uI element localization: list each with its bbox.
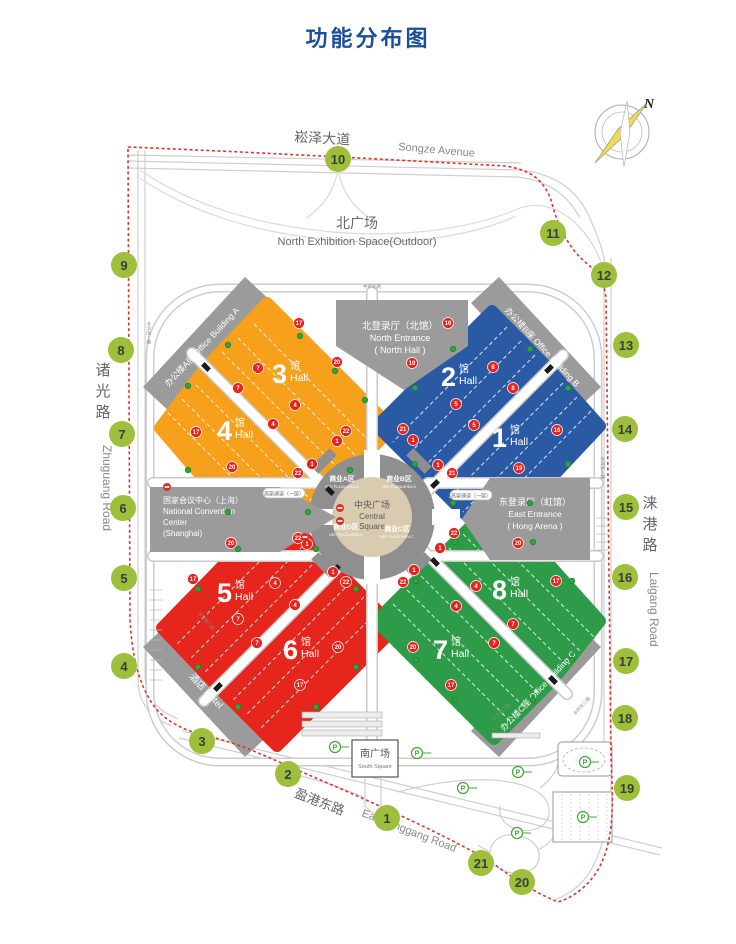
north-entrance-en2: ( North Hall ) [374, 345, 425, 355]
songze-cn-label: 崧泽大道 [294, 129, 351, 148]
north-entrance-cn: 北登录厅（北馆） [362, 320, 438, 332]
hall-entry-dot [347, 467, 353, 473]
hall-6-number: 6 [283, 635, 298, 665]
metro-platform [302, 721, 382, 727]
hall-entry-dot [569, 578, 575, 584]
hall-4-en: Hall [235, 429, 253, 441]
page-title: 功能分布图 [305, 26, 430, 51]
hall-entry-dot [569, 657, 575, 663]
hall-2-en: Hall [459, 375, 477, 387]
laigang-cn-label: 涞港路 [642, 495, 657, 554]
boundary-marker-number: 6 [119, 501, 126, 516]
hall-2-number: 2 [441, 362, 456, 392]
road-songze [128, 168, 580, 218]
micro-road-label: 中环东一路 [599, 457, 606, 480]
boundary-marker-number: 1 [383, 811, 390, 826]
hall-entry-dot [235, 704, 241, 710]
road-south-loop [490, 835, 539, 874]
no-entry-bar [338, 507, 343, 509]
hall-entry-dot [450, 346, 456, 352]
hall-8-number: 8 [492, 575, 507, 605]
gate-marker-number: 17 [297, 683, 304, 689]
compass-needle-secondary [620, 101, 630, 167]
hall-7-en: Hall [451, 648, 469, 660]
hall-1-number: 1 [492, 423, 507, 453]
central-square-label-en: Square [359, 522, 385, 531]
micro-road-label: 中环东三路 [572, 695, 593, 717]
south-area: 南广场 South Square [302, 712, 612, 842]
ncc-label-cn: 国家会议中心（上海） [163, 495, 243, 505]
micro-road-label: 中环北路 [363, 283, 381, 290]
hall-entry-dot [530, 539, 536, 545]
hall-entry-dot [305, 509, 311, 515]
central-square-label-en: Central [359, 512, 385, 521]
zhuguang-en-label: Zhuguang Road [100, 445, 114, 531]
hall-4-suffix: 馆 [235, 416, 245, 429]
gate-marker-number: 21 [449, 471, 456, 477]
hall-entry-dot [452, 697, 458, 703]
parking-icon-letter: P [461, 786, 466, 793]
plaza-quadrant-cn: 商业C区 [384, 524, 410, 533]
gate-marker-number: 22 [451, 531, 458, 537]
boundary-marker-number: 13 [619, 338, 633, 353]
gate-marker-number: 20 [410, 645, 417, 651]
metro-platform [492, 733, 540, 738]
hall-entry-dot [332, 368, 338, 374]
boundary-marker-number: 16 [618, 570, 632, 585]
micro-road-label: 中环西一路 [145, 322, 152, 345]
hall-1-suffix: 馆 [510, 423, 520, 436]
hall-2-suffix: 馆 [459, 362, 469, 375]
gate-marker-number: 19 [409, 361, 416, 367]
plaza-quadrant-en: NEC PLAZA AREA B [382, 485, 416, 489]
boundary-marker-number: 9 [120, 258, 127, 273]
road-north-square [140, 170, 520, 234]
gate-marker-number: 22 [343, 580, 350, 586]
parking-icon-letter: P [333, 745, 338, 752]
parking-icon-letter: P [516, 770, 521, 777]
parking-icon-letter: P [583, 760, 588, 767]
no-entry-bar [303, 536, 308, 538]
ncc-label-en2: Center [163, 518, 187, 527]
parking-icon-letter: P [415, 751, 420, 758]
boundary-marker-number: 14 [618, 422, 633, 437]
hall-entry-dot [362, 397, 368, 403]
gate-marker-number: 19 [516, 466, 523, 472]
gate-marker-number: 21 [400, 427, 407, 433]
hall-entry-dot [353, 586, 359, 592]
hall-7-suffix: 馆 [451, 635, 461, 648]
gate-marker-number: 17 [193, 430, 200, 436]
boundary-marker-number: 12 [597, 268, 611, 283]
hall-entry-dot [225, 509, 231, 515]
north-square-cn: 北广场 [336, 215, 378, 231]
north-entrance-en: North Entrance [370, 333, 431, 343]
gate-marker-number: 20 [515, 541, 522, 547]
hall-1-en: Hall [510, 436, 528, 448]
gate-marker-number: 17 [553, 579, 560, 585]
parking-icon-letter: P [515, 831, 520, 838]
hall-5-suffix: 馆 [235, 578, 245, 591]
boundary-marker-number: 18 [618, 711, 632, 726]
road-north-square [140, 178, 516, 242]
gate-marker-number: 22 [295, 536, 302, 542]
gate-marker-number: 22 [400, 580, 407, 586]
hall-entry-dot [185, 467, 191, 473]
ncc-label-en: National Convention [163, 507, 235, 516]
hall-7-number: 7 [433, 635, 448, 665]
hall-3-number: 3 [272, 359, 287, 389]
compass: N [595, 97, 655, 167]
hall-6-en: Hall [301, 648, 319, 660]
north-square-en: North Exhibition Space(Outdoor) [278, 236, 437, 248]
hall-3-suffix: 馆 [290, 359, 300, 372]
central-square-label-cn: 中央广场 [354, 499, 390, 510]
hall-entry-dot [565, 461, 571, 467]
gate-marker-number: 22 [295, 471, 302, 477]
plaza-quadrant-en: NEC PLAZA AREA D [329, 533, 363, 537]
boundary-marker-number: 17 [619, 654, 633, 669]
gate-marker-number: 17 [448, 683, 455, 689]
viaduct-west-label: 高架通道（一层） [264, 491, 304, 498]
zhuguang-cn-label: 诸光路 [95, 362, 110, 421]
hall-entry-dot [413, 578, 419, 584]
plaza-quadrant-cn: 商业A区 [329, 474, 355, 483]
gate-marker-number: 20 [228, 541, 235, 547]
boundary-marker-number: 20 [515, 875, 529, 890]
compass-n-label: N [643, 97, 655, 112]
gate-marker-number: 16 [445, 321, 452, 327]
hall-entry-dot [225, 342, 231, 348]
plaza-quadrant-cn: 商业B区 [386, 474, 412, 483]
viaduct-east-label: 高架通道（一层） [451, 493, 491, 500]
boundary-marker-number: 21 [474, 856, 488, 871]
hall-entry-dot [565, 385, 571, 391]
south-square-en: South Square [358, 764, 392, 770]
gate-marker-number: 22 [343, 429, 350, 435]
east-entrance-en: East Entrance [508, 509, 562, 519]
plaza-quadrant-en: NEC PLAZA AREA C [380, 535, 414, 539]
boundary-marker-number: 15 [619, 500, 633, 515]
metro-platform [302, 730, 382, 736]
no-entry-bar [338, 520, 343, 522]
boundary-marker-number: 11 [546, 226, 560, 241]
gate-marker-number: 20 [335, 645, 342, 651]
hall-5-en: Hall [235, 591, 253, 603]
east-entrance-cn: 东登录厅（虹馆） [499, 496, 571, 507]
hall-entry-dot [413, 657, 419, 663]
boundary-marker-number: 19 [620, 781, 634, 796]
hall-entry-dot [450, 500, 456, 506]
boundary-marker-number: 5 [120, 571, 127, 586]
hall-3-en: Hall [290, 372, 308, 384]
hall-entry-dot [313, 704, 319, 710]
hall-entry-dot [412, 385, 418, 391]
south-square-cn: 南广场 [360, 747, 390, 760]
hall-entry-dot [527, 346, 533, 352]
road-north-square [306, 170, 370, 218]
hall-entry-dot [452, 539, 458, 545]
hall-entry-dot [235, 546, 241, 552]
no-entry-bar [165, 486, 170, 488]
hall-entry-dot [530, 697, 536, 703]
site-map: 功能分布图 [0, 0, 736, 944]
hall-entry-dot [297, 333, 303, 339]
hall-entry-dot [195, 664, 201, 670]
hall-entry-dot [313, 546, 319, 552]
boundary-marker-number: 8 [117, 343, 124, 358]
gate-marker-number: 16 [554, 428, 561, 434]
boundary-marker-number: 2 [284, 767, 291, 782]
hall-entry-dot [353, 664, 359, 670]
boundary-marker-number: 10 [331, 152, 345, 167]
hall-8-en: Hall [510, 588, 528, 600]
ncc-label-en3: (Shanghai) [163, 529, 202, 538]
boundary-marker-number: 4 [120, 659, 128, 674]
laigang-en-label: Laigang Road [647, 572, 661, 647]
hall-entry-dot [412, 461, 418, 467]
parking-icon-letter: P [581, 815, 586, 822]
gate-marker-number: 17 [190, 577, 197, 583]
hall-entry-dot [527, 500, 533, 506]
hall-5-number: 5 [217, 578, 232, 608]
hall-entry-dot [195, 586, 201, 592]
hall-entry-dot [185, 383, 191, 389]
boundary-marker-number: 7 [118, 427, 125, 442]
hall-6-suffix: 馆 [301, 635, 311, 648]
yinggang-cn-label: 盈港东路 [293, 785, 347, 818]
gate-marker-number: 20 [229, 465, 236, 471]
hall-4-number: 4 [217, 416, 232, 446]
hall-8-suffix: 馆 [510, 575, 520, 588]
gate-marker-number: 17 [296, 321, 303, 327]
east-entrance-en2: ( Hong Arena ) [507, 521, 562, 531]
metro-platform [302, 712, 382, 718]
gate-marker-number: 20 [334, 360, 341, 366]
boundary-marker-number: 3 [198, 734, 205, 749]
songze-en-label: Songze Avenue [398, 141, 476, 160]
